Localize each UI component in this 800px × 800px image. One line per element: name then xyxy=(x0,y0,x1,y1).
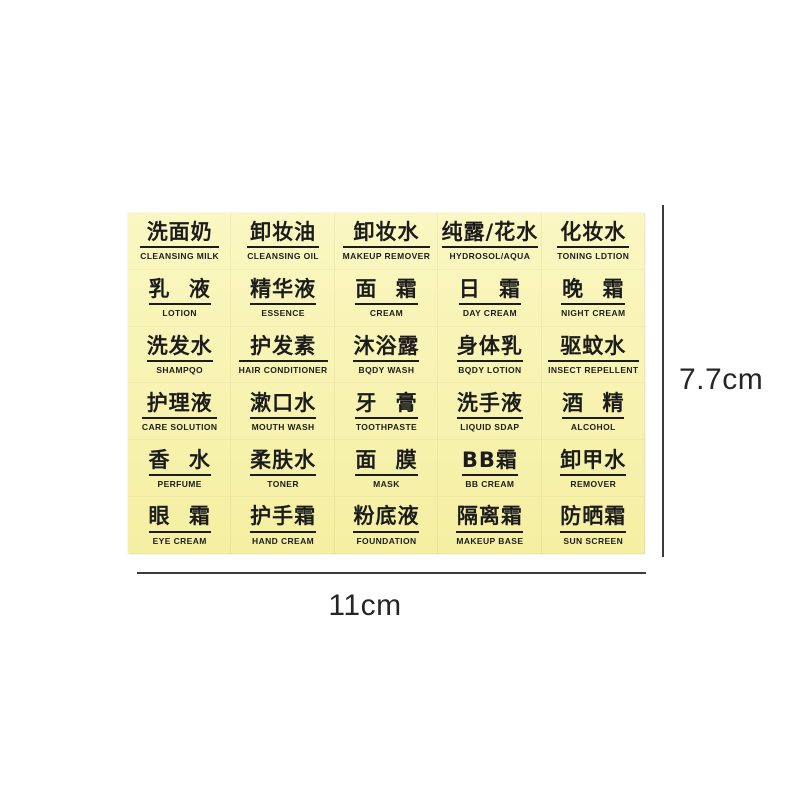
label-cell: 洗发水SHAMPQO xyxy=(128,327,231,384)
label-cell: 护手霜HAND CREAM xyxy=(231,497,334,554)
label-english-text: FOUNDATION xyxy=(356,536,416,547)
label-divider xyxy=(250,417,316,419)
label-divider xyxy=(250,474,316,476)
label-english-text: HAND CREAM xyxy=(252,536,314,547)
label-divider xyxy=(355,303,417,305)
label-chinese-text: 沐浴露 xyxy=(353,334,419,358)
label-chinese-text: 眼 霜 xyxy=(149,504,211,528)
width-dimension-line xyxy=(137,572,646,574)
label-english-text: CREAM xyxy=(370,308,403,319)
label: 身体乳BQDY LOTION xyxy=(457,334,523,376)
label-cell: 晚 霜NIGHT CREAM xyxy=(542,270,645,327)
label-chinese-text: 防晒霜 xyxy=(560,504,626,528)
label-chinese-text: 洗手液 xyxy=(457,391,523,415)
label-chinese-text: 乳 液 xyxy=(149,277,211,301)
label: 驱蚊水INSECT REPELLENT xyxy=(548,334,638,376)
label: 酒 精ALCOHOL xyxy=(562,391,624,433)
label-chinese-text: 柔肤水 xyxy=(250,448,316,472)
label-cell: 纯露/花水HYDROSOL/AQUA xyxy=(438,213,541,270)
label-chinese-text: 纯露/花水 xyxy=(442,220,539,244)
label-chinese-text: 酒 精 xyxy=(562,391,624,415)
sticker-sheet: 洗面奶CLEANSING MILK卸妆油CLEANSING OIL卸妆水MAKE… xyxy=(128,213,645,554)
label-chinese-text: 护手霜 xyxy=(250,504,316,528)
label-chinese-text: 护发素 xyxy=(250,334,316,358)
label-divider xyxy=(561,303,625,305)
width-dimension-label: 11cm xyxy=(298,589,432,623)
label: 卸甲水REMOVER xyxy=(560,448,626,490)
label-english-text: BQDY LOTION xyxy=(458,365,521,376)
label: 护发素HAIR CONDITIONER xyxy=(239,334,328,376)
label-chinese-text: 洗面奶 xyxy=(147,220,213,244)
height-dimension-line xyxy=(662,205,664,557)
label-divider xyxy=(140,246,219,248)
label: 卸妆水MAKEUP REMOVER xyxy=(343,220,431,262)
label-english-text: SHAMPQO xyxy=(156,365,203,376)
label: 粉底液FOUNDATION xyxy=(353,504,419,546)
label-english-text: HYDROSOL/AQUA xyxy=(450,251,531,262)
label-english-text: ALCOHOL xyxy=(571,422,616,433)
label-english-text: BQDY WASH xyxy=(359,365,415,376)
label-english-text: MOUTH WASH xyxy=(252,422,315,433)
label: 面 膜MASK xyxy=(355,448,417,490)
label-chinese-text: 粉底液 xyxy=(353,504,419,528)
label-english-text: CARE SOLUTION xyxy=(142,422,218,433)
label-divider xyxy=(250,531,316,533)
label-chinese-text: 隔离霜 xyxy=(457,504,523,528)
label: 护手霜HAND CREAM xyxy=(250,504,316,546)
label-divider xyxy=(149,474,211,476)
label-english-text: CLEANSING OIL xyxy=(247,251,319,262)
label: BB霜BB CREAM xyxy=(462,448,518,490)
label-cell: 乳 液LOTION xyxy=(128,270,231,327)
label: 洗发水SHAMPQO xyxy=(147,334,213,376)
label-english-text: EYE CREAM xyxy=(153,536,207,547)
label-cell: 洗面奶CLEANSING MILK xyxy=(128,213,231,270)
label-english-text: PERFUME xyxy=(158,479,202,490)
label-english-text: SUN SCREEN xyxy=(563,536,623,547)
label-chinese-text: 日 霜 xyxy=(459,277,521,301)
label: 柔肤水TONER xyxy=(250,448,316,490)
label-chinese-text: 化妆水 xyxy=(560,220,626,244)
label-english-text: TONING LDTION xyxy=(557,251,629,262)
label-divider xyxy=(239,360,328,362)
label-cell: 隔离霜MAKEUP BASE xyxy=(438,497,541,554)
label-divider xyxy=(355,474,417,476)
label-divider xyxy=(353,360,419,362)
label-english-text: ESSENCE xyxy=(261,308,304,319)
label-divider xyxy=(355,417,417,419)
label-chinese-text: 精华液 xyxy=(250,277,316,301)
label: 洗手液LIQUID SDAP xyxy=(457,391,523,433)
label-english-text: BB CREAM xyxy=(465,479,514,490)
label-english-text: HAIR CONDITIONER xyxy=(239,365,328,376)
label-english-text: TONER xyxy=(267,479,299,490)
label-divider xyxy=(147,360,213,362)
label-divider xyxy=(457,417,523,419)
label: 香 水PERFUME xyxy=(149,448,211,490)
label-divider xyxy=(560,531,626,533)
label-english-text: MAKEUP BASE xyxy=(456,536,523,547)
label-chinese-text: 卸甲水 xyxy=(560,448,626,472)
label-divider xyxy=(462,474,518,476)
label-english-text: LIQUID SDAP xyxy=(460,422,519,433)
label-divider xyxy=(442,246,539,248)
label-cell: 眼 霜EYE CREAM xyxy=(128,497,231,554)
label-cell: 牙 膏TOOTHPASTE xyxy=(335,383,438,440)
label-divider xyxy=(457,360,523,362)
label-english-text: LOTION xyxy=(162,308,197,319)
label: 乳 液LOTION xyxy=(149,277,211,319)
label-cell: 酒 精ALCOHOL xyxy=(542,383,645,440)
label-cell: 面 霜CREAM xyxy=(335,270,438,327)
label-cell: 卸甲水REMOVER xyxy=(542,440,645,497)
label-cell: 香 水PERFUME xyxy=(128,440,231,497)
product-photo: 洗面奶CLEANSING MILK卸妆油CLEANSING OIL卸妆水MAKE… xyxy=(0,0,800,800)
label: 牙 膏TOOTHPASTE xyxy=(355,391,417,433)
height-dimension-label: 7.7cm xyxy=(679,363,763,397)
label-cell: 身体乳BQDY LOTION xyxy=(438,327,541,384)
label-divider xyxy=(353,531,419,533)
label-divider xyxy=(557,246,629,248)
label-chinese-text: 晚 霜 xyxy=(562,277,624,301)
label-cell: 卸妆油CLEANSING OIL xyxy=(231,213,334,270)
label-cell: 柔肤水TONER xyxy=(231,440,334,497)
label-divider xyxy=(456,531,523,533)
label-divider xyxy=(459,303,521,305)
label-divider xyxy=(548,360,638,362)
label-english-text: MAKEUP REMOVER xyxy=(343,251,431,262)
label-cell: 日 霜DAY CREAM xyxy=(438,270,541,327)
label: 洗面奶CLEANSING MILK xyxy=(140,220,219,262)
label-cell: 沐浴露BQDY WASH xyxy=(335,327,438,384)
label-divider xyxy=(247,246,319,248)
label-chinese-text: 牙 膏 xyxy=(355,391,417,415)
label-divider xyxy=(149,303,211,305)
label: 护理液CARE SOLUTION xyxy=(142,391,218,433)
label-chinese-text: 卸妆油 xyxy=(250,220,316,244)
label-cell: 化妆水TONING LDTION xyxy=(542,213,645,270)
label: 防晒霜SUN SCREEN xyxy=(560,504,626,546)
label-cell: 漱口水MOUTH WASH xyxy=(231,383,334,440)
label-chinese-text: 面 霜 xyxy=(355,277,417,301)
label-divider xyxy=(149,531,211,533)
label: 日 霜DAY CREAM xyxy=(459,277,521,319)
label-cell: 护理液CARE SOLUTION xyxy=(128,383,231,440)
label-chinese-text: 洗发水 xyxy=(147,334,213,358)
label: 化妆水TONING LDTION xyxy=(557,220,629,262)
label-chinese-text: 香 水 xyxy=(149,448,211,472)
label-cell: 护发素HAIR CONDITIONER xyxy=(231,327,334,384)
label: 晚 霜NIGHT CREAM xyxy=(561,277,625,319)
label-cell: 防晒霜SUN SCREEN xyxy=(542,497,645,554)
label-divider xyxy=(142,417,218,419)
label-chinese-text: 卸妆水 xyxy=(353,220,419,244)
label-chinese-text: 护理液 xyxy=(147,391,213,415)
label-divider xyxy=(562,417,624,419)
label-cell: 精华液ESSENCE xyxy=(231,270,334,327)
label: 面 霜CREAM xyxy=(355,277,417,319)
label-cell: 面 膜MASK xyxy=(335,440,438,497)
label-english-text: CLEANSING MILK xyxy=(140,251,219,262)
label-divider xyxy=(343,246,431,248)
label-divider xyxy=(560,474,626,476)
label: 漱口水MOUTH WASH xyxy=(250,391,316,433)
label-english-text: NIGHT CREAM xyxy=(561,308,625,319)
label-divider xyxy=(250,303,316,305)
label-english-text: DAY CREAM xyxy=(463,308,517,319)
label-cell: 驱蚊水INSECT REPELLENT xyxy=(542,327,645,384)
label-english-text: REMOVER xyxy=(570,479,616,490)
label: 卸妆油CLEANSING OIL xyxy=(247,220,319,262)
label-english-text: INSECT REPELLENT xyxy=(548,365,638,376)
label-chinese-text: 漱口水 xyxy=(250,391,316,415)
label: 眼 霜EYE CREAM xyxy=(149,504,211,546)
label-cell: 粉底液FOUNDATION xyxy=(335,497,438,554)
label-chinese-text: 面 膜 xyxy=(355,448,417,472)
label-english-text: MASK xyxy=(373,479,400,490)
label-chinese-text: 身体乳 xyxy=(457,334,523,358)
label: 精华液ESSENCE xyxy=(250,277,316,319)
label-cell: 洗手液LIQUID SDAP xyxy=(438,383,541,440)
label-english-text: TOOTHPASTE xyxy=(356,422,417,433)
label: 沐浴露BQDY WASH xyxy=(353,334,419,376)
label: 隔离霜MAKEUP BASE xyxy=(456,504,523,546)
label-chinese-text: 驱蚊水 xyxy=(560,334,626,358)
label: 纯露/花水HYDROSOL/AQUA xyxy=(442,220,539,262)
label-cell: 卸妆水MAKEUP REMOVER xyxy=(335,213,438,270)
label-chinese-text: BB霜 xyxy=(462,448,518,472)
label-cell: BB霜BB CREAM xyxy=(438,440,541,497)
